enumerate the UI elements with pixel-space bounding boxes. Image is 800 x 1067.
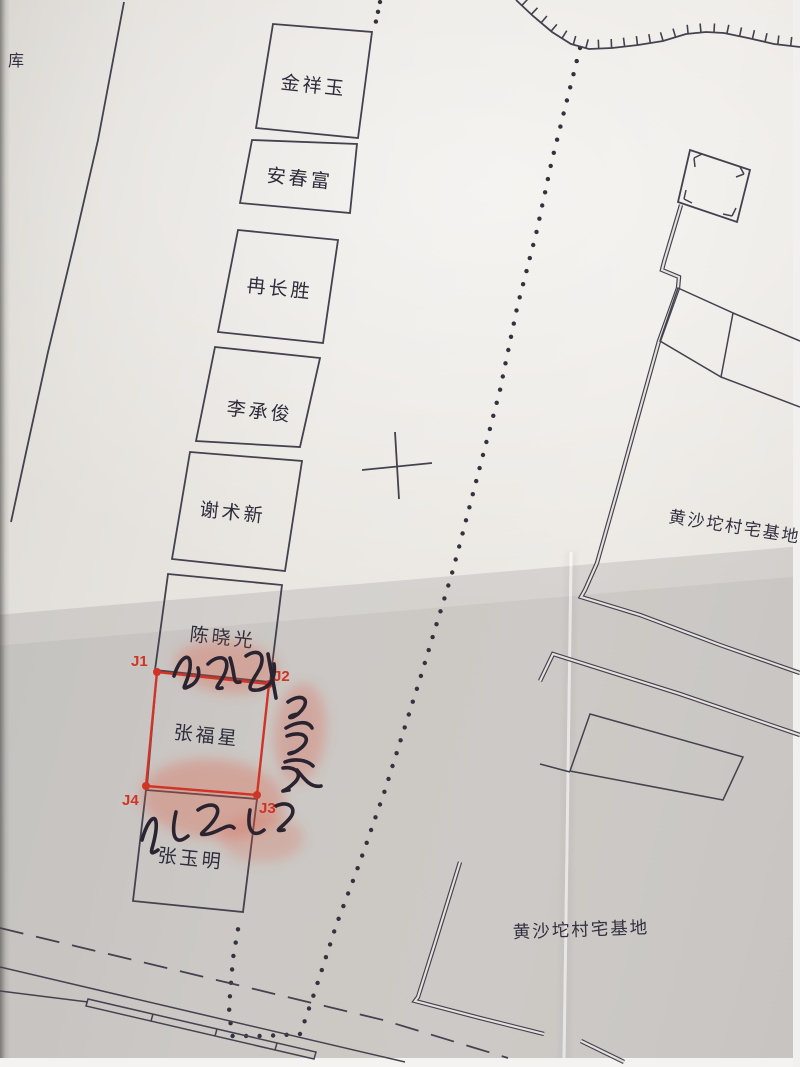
small-building bbox=[678, 150, 750, 222]
corner-label-j3: J3 bbox=[259, 800, 276, 817]
fence-bar bbox=[86, 999, 316, 1059]
plot-label: 张福星 bbox=[173, 722, 241, 751]
rect-building bbox=[540, 714, 743, 800]
map-drawing: 库 金祥玉 安春富 冉长胜 李承俊 谢术新 陈晓光 张福星 张玉明 bbox=[0, 0, 800, 1067]
plot-label: 金祥玉 bbox=[280, 72, 348, 101]
plot-label: 张玉明 bbox=[157, 845, 225, 874]
southeast-wall bbox=[415, 862, 624, 1062]
photographed-cadastral-map: { "map": { "warehouse_label": "库", "plot… bbox=[0, 0, 800, 1067]
warehouse-label: 库 bbox=[8, 52, 26, 70]
corner-point-j1 bbox=[153, 668, 161, 676]
area-label-east: 黄沙坨村宅基地 bbox=[667, 507, 800, 547]
plot-box bbox=[196, 347, 320, 447]
embankment-line bbox=[516, 0, 800, 49]
plot-label: 谢术新 bbox=[199, 499, 267, 528]
road-edge-line2 bbox=[0, 991, 88, 1002]
plot-label: 安春富 bbox=[266, 165, 334, 194]
corner-label-j4: J4 bbox=[122, 792, 139, 809]
dotted-boundary bbox=[227, 0, 582, 1038]
corner-point-j3 bbox=[253, 791, 261, 799]
survey-cross bbox=[362, 432, 432, 499]
corner-point-j4 bbox=[142, 782, 150, 790]
boundary-wall bbox=[581, 205, 800, 673]
plot-label: 冉长胜 bbox=[246, 275, 314, 304]
plot-label: 李承俊 bbox=[226, 398, 294, 427]
road-edge-line bbox=[0, 967, 405, 1062]
left-boundary-line bbox=[11, 2, 124, 522]
lower-wall bbox=[540, 654, 800, 735]
area-label-southeast: 黄沙坨村宅基地 bbox=[512, 917, 649, 942]
corner-label-j1: J1 bbox=[131, 653, 148, 670]
building-outlines bbox=[660, 288, 800, 407]
